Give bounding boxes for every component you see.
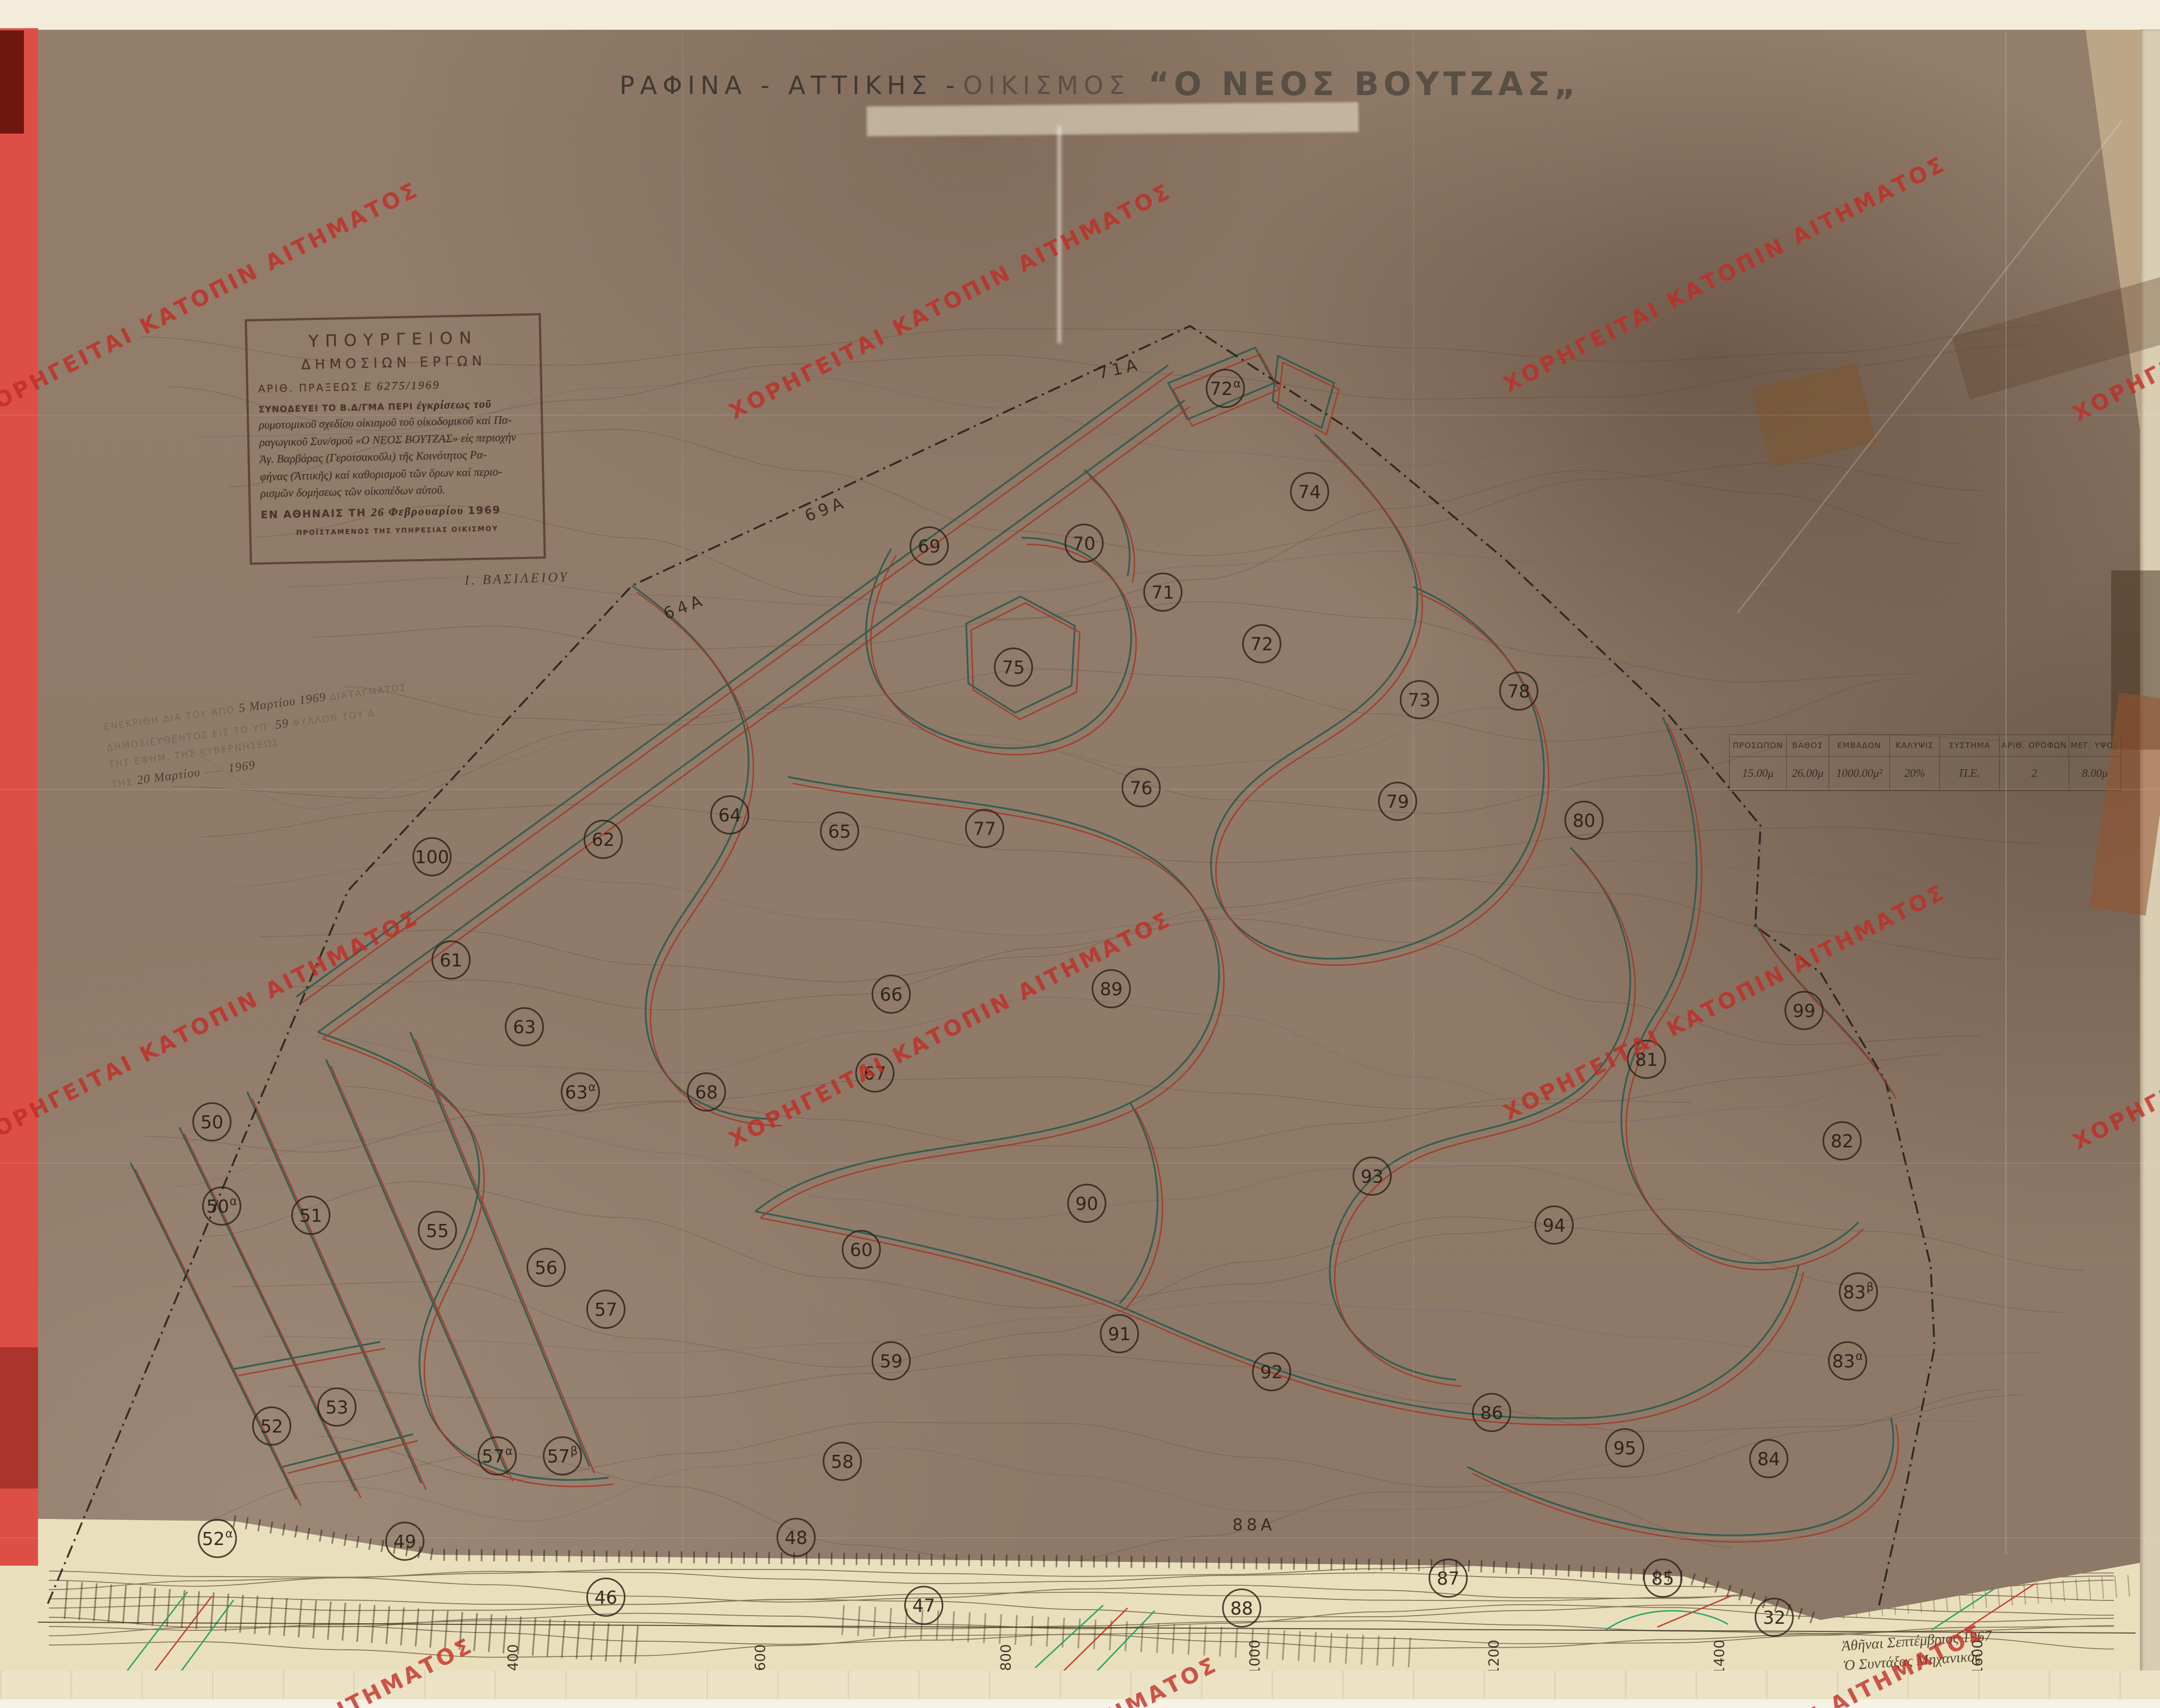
block-number: 65 [820, 812, 859, 851]
block-number: 63 [505, 1007, 544, 1046]
table-value-cell: 20% [1890, 757, 1940, 790]
block-number: 52α [198, 1519, 237, 1558]
stamped-segment: ΤΗΣ [111, 776, 138, 790]
stamped-segment: ΕΝ ΑΘΗΝΑΙΣ ΤΗ [261, 506, 371, 520]
block-number: 61 [431, 940, 471, 979]
table-value-cell: 1000.00μ² [1829, 757, 1890, 790]
stamp-act-number: ΑΡΙΘ. ΠΡΑΞΕΩΣ Ε 6275/1969 [258, 376, 530, 395]
block-number: 72 [1242, 624, 1281, 663]
block-number: 53 [317, 1387, 356, 1427]
handwritten-segment: 1969 [298, 689, 331, 707]
table-value-cell: Π.Ε. [1940, 757, 2000, 790]
block-number: 66 [872, 975, 911, 1014]
block-number: 57 [586, 1290, 625, 1329]
table-header-cell: ΒΑΘΟΣ [1787, 735, 1829, 757]
handwritten-segment: 1969 [228, 758, 256, 775]
block-number: 56 [527, 1248, 566, 1287]
table-header-cell: ΕΜΒΑΔΟΝ [1829, 735, 1890, 757]
block-number: 95 [1605, 1428, 1644, 1467]
block-number: 88 [1222, 1588, 1261, 1628]
horizontal-scan-seam [0, 789, 2160, 790]
block-number: 99 [1785, 991, 1824, 1030]
block-number: 57α [478, 1436, 517, 1475]
block-number: 94 [1535, 1205, 1574, 1245]
block-number: 58 [823, 1442, 862, 1481]
table-value-cell: 15.00μ [1730, 757, 1787, 790]
block-number: 69 [910, 526, 949, 566]
block-number: 63α [561, 1072, 600, 1112]
block-number: 72α [1206, 369, 1245, 408]
road-label: 88Α [1232, 1516, 1276, 1535]
block-number: 70 [1065, 524, 1104, 563]
table-value-cell: 26.00μ [1787, 757, 1829, 790]
block-number: 50α [202, 1186, 241, 1226]
block-number: 80 [1564, 801, 1604, 840]
block-number: 64 [710, 795, 749, 834]
left-red-binding-strip [0, 28, 38, 1566]
handwritten-segment: 26 Φεβρουαρίου [371, 504, 468, 519]
block-number: 32 [1755, 1598, 1794, 1637]
block-number: 52 [252, 1406, 291, 1446]
title-erasure-band [867, 102, 1358, 136]
horizontal-scan-seam [0, 1163, 2160, 1164]
block-number: 76 [1122, 768, 1161, 807]
vertical-crease [682, 33, 683, 1597]
block-number: 87 [1429, 1559, 1468, 1598]
table-header-cell: ΑΡΙΘ. ΟΡΟΦΩΝ [2000, 735, 2069, 757]
block-number: 91 [1100, 1314, 1139, 1353]
zoning-table: ΠΡΟΣΩΠΟΝΒΑΘΟΣΕΜΒΑΔΟΝΚΑΛΥΨΙΣΣΥΣΤΗΜΑΑΡΙΘ. … [1729, 734, 2121, 791]
stamp-handwritten-body: ρυμοτομικοῦ σχεδίου οἰκισμοῦ τοῦ οἰκοδομ… [259, 411, 533, 503]
title-settlement-name: “Ο ΝΕΟΣ ΒΟΥΤΖΑΣ„ [1148, 65, 1580, 103]
map-title: ΡΑΦΙΝΑ - ΑΤΤΙΚΗΣ - ΟΙΚΙΣΜΟΣ “Ο ΝΕΟΣ ΒΟΥΤ… [619, 64, 1580, 102]
block-number: 59 [872, 1341, 911, 1380]
block-number: 47 [904, 1586, 943, 1625]
left-maroon-patch [0, 30, 24, 134]
block-number: 89 [1092, 969, 1131, 1008]
block-number: 78 [1499, 671, 1538, 711]
ministry-stamp: ΥΠΟΥΡΓΕΙΟΝ ΔΗΜΟΣΙΩΝ ΕΡΓΩΝ ΑΡΙΘ. ΠΡΑΞΕΩΣ … [245, 313, 546, 564]
stamp-public-works-line: ΔΗΜΟΣΙΩΝ ΕΡΓΩΝ [258, 352, 530, 373]
stamp-date-line: ΕΝ ΑΘΗΝΑΙΣ ΤΗ 26 Φεβρουαρίου 1969 [261, 502, 533, 521]
handwritten-segment: Ε 6275/1969 [364, 378, 440, 393]
scanned-map-sheet: ΡΑΦΙΝΑ - ΑΤΤΙΚΗΣ - ΟΙΚΙΣΜΟΣ “Ο ΝΕΟΣ ΒΟΥΤ… [0, 0, 2160, 1708]
table-header-cell: ΠΡΟΣΩΠΟΝ [1730, 735, 1787, 757]
road-network [0, 0, 2160, 1708]
block-number: 100 [412, 837, 452, 876]
block-number: 83β [1839, 1272, 1878, 1311]
block-number: 57β [543, 1436, 582, 1475]
block-number: 46 [586, 1578, 625, 1617]
stamped-segment: ΑΡΙΘ. ΠΡΑΞΕΩΣ [258, 381, 364, 395]
block-number: 50 [192, 1102, 231, 1141]
block-number: 73 [1400, 680, 1439, 719]
block-number: 55 [418, 1211, 457, 1250]
handwritten-segment: 59 [274, 716, 293, 732]
horizontal-scan-seam [0, 1537, 2160, 1539]
block-number: 85 [1643, 1559, 1682, 1598]
block-number: 82 [1823, 1121, 1862, 1160]
block-number: 83α [1828, 1341, 1867, 1380]
block-number: 77 [965, 809, 1004, 848]
block-number: 75 [994, 648, 1033, 687]
title-settlement-word: ΟΙΚΙΣΜΟΣ [963, 71, 1130, 100]
block-number: 49 [385, 1522, 424, 1561]
block-number: 71 [1143, 573, 1182, 612]
stamp-ministry-line: ΥΠΟΥΡΓΕΙΟΝ [257, 328, 530, 352]
block-number: 51 [291, 1196, 330, 1235]
scan-top-margin [0, 0, 2160, 29]
vertical-crease [2005, 33, 2007, 1554]
block-number: 79 [1378, 782, 1417, 821]
title-region: ΡΑΦΙΝΑ - ΑΤΤΙΚΗΣ - [619, 71, 960, 100]
stamped-segment: 1969 [468, 504, 501, 516]
block-number: 86 [1472, 1393, 1511, 1432]
table-header-cell: ΣΥΣΤΗΜΑ [1940, 735, 2000, 757]
left-red-stain [0, 1347, 38, 1489]
table-header-cell: ΚΑΛΥΨΙΣ [1890, 735, 1940, 757]
block-number: 74 [1290, 472, 1329, 511]
stamped-segment: ΣΥΝΟΔΕΥΕΙ ΤΟ Β.Δ/ΓΜΑ ΠΕΡΙ [259, 401, 417, 415]
block-number: 90 [1067, 1184, 1106, 1223]
handwritten-segment: ἐγκρίσεως τοῦ [417, 397, 492, 412]
table-value-cell: 2 [2000, 757, 2069, 790]
block-number: 60 [842, 1230, 881, 1269]
stamped-segment: —— [203, 764, 229, 778]
stamp-officer-title: ΠΡΟΪΣΤΑΜΕΝΟΣ ΤΗΣ ΥΠΗΡΕΣΙΑΣ ΟΙΚΙΣΜΟΥ [261, 523, 533, 537]
horizontal-scan-seam [0, 415, 2160, 416]
vertical-crease [1413, 33, 1414, 1608]
block-number: 62 [584, 820, 623, 859]
block-number: 92 [1252, 1352, 1291, 1391]
block-number: 84 [1749, 1439, 1788, 1478]
block-number: 68 [687, 1072, 726, 1112]
